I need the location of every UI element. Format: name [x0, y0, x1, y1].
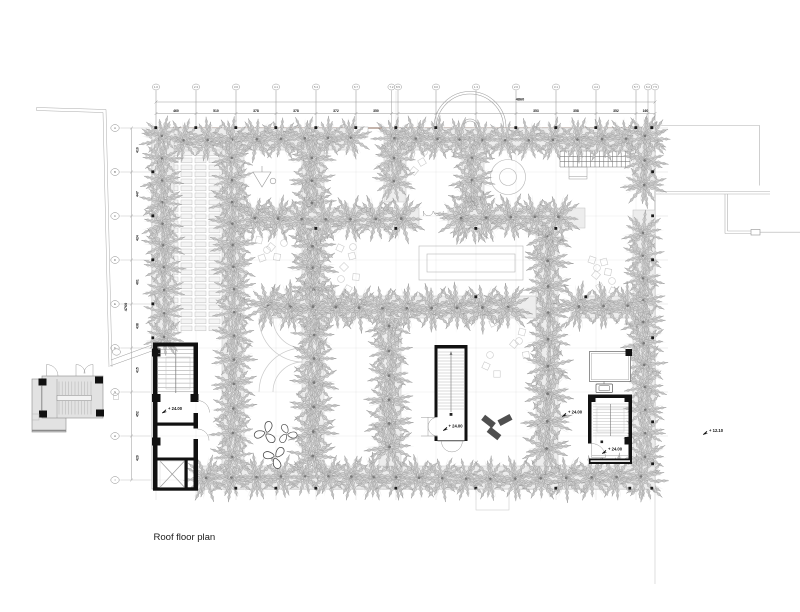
svg-text:372: 372: [333, 109, 339, 113]
svg-text:160: 160: [643, 109, 649, 113]
svg-text:1.0: 1.0: [154, 85, 158, 89]
svg-text:Roof floor plan: Roof floor plan: [154, 532, 216, 543]
svg-text:6.7: 6.7: [354, 85, 358, 89]
svg-text:1.3: 1.3: [474, 85, 478, 89]
svg-text:2.3: 2.3: [194, 85, 198, 89]
svg-text:352: 352: [613, 109, 619, 113]
svg-text:B: B: [114, 170, 116, 174]
svg-text:447: 447: [136, 191, 140, 197]
svg-text:8.5: 8.5: [396, 85, 400, 89]
svg-text:+ 24.00: + 24.00: [568, 410, 583, 415]
svg-text:353: 353: [533, 109, 539, 113]
svg-text:5.4: 5.4: [314, 85, 318, 89]
svg-text:+ 12.10: + 12.10: [709, 428, 724, 433]
svg-text:7.5: 7.5: [653, 85, 657, 89]
svg-text:461: 461: [136, 279, 140, 285]
svg-text:378: 378: [253, 109, 259, 113]
svg-text:6.2: 6.2: [646, 85, 650, 89]
svg-text:424: 424: [136, 235, 140, 241]
svg-text:410: 410: [136, 147, 140, 153]
svg-text:2.6: 2.6: [514, 85, 518, 89]
svg-text:4860: 4860: [516, 98, 524, 102]
svg-text:4.4: 4.4: [594, 85, 598, 89]
svg-text:350: 350: [373, 109, 379, 113]
svg-text:E: E: [114, 302, 116, 306]
svg-text:5.7: 5.7: [634, 85, 638, 89]
svg-text:A: A: [114, 126, 116, 130]
svg-text:378: 378: [293, 109, 299, 113]
svg-text:+ 24.00: + 24.00: [608, 447, 623, 452]
svg-text:358: 358: [573, 109, 579, 113]
svg-text:510: 510: [213, 109, 219, 113]
svg-text:4.1: 4.1: [274, 85, 278, 89]
svg-text:+ 24.00: + 24.00: [449, 424, 464, 429]
svg-text:3.1: 3.1: [554, 85, 558, 89]
svg-text:9.0: 9.0: [434, 85, 438, 89]
svg-text:429: 429: [136, 455, 140, 461]
svg-text:452: 452: [136, 411, 140, 417]
svg-text:4760: 4760: [124, 303, 128, 311]
svg-text:438: 438: [136, 323, 140, 329]
svg-text:415: 415: [136, 367, 140, 373]
svg-text:H: H: [114, 434, 116, 438]
svg-text:7.2: 7.2: [390, 85, 394, 89]
svg-text:460: 460: [173, 109, 179, 113]
svg-text:3.6: 3.6: [234, 85, 238, 89]
svg-text:+ 24.00: + 24.00: [168, 406, 183, 411]
